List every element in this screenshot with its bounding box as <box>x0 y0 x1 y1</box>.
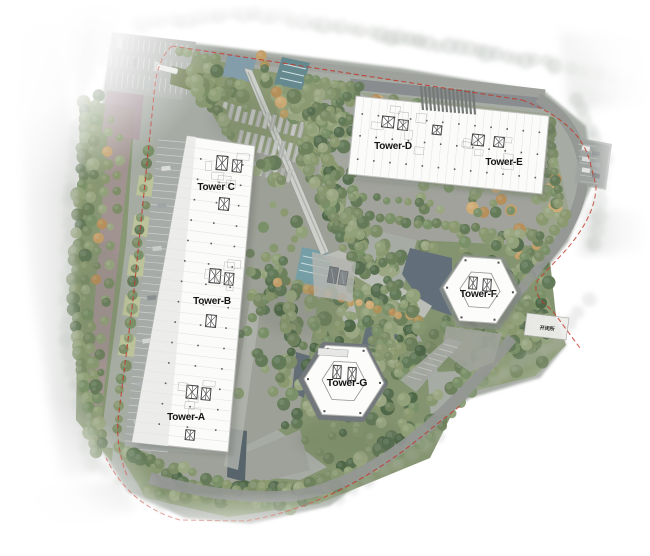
svg-text:Tower-F.: Tower-F. <box>460 289 499 300</box>
svg-text:Tower-G: Tower-G <box>327 377 367 389</box>
svg-text:Tower-B: Tower-B <box>193 296 231 307</box>
svg-text:Tower-E: Tower-E <box>485 157 523 168</box>
svg-text:Tower-D: Tower-D <box>374 141 412 152</box>
